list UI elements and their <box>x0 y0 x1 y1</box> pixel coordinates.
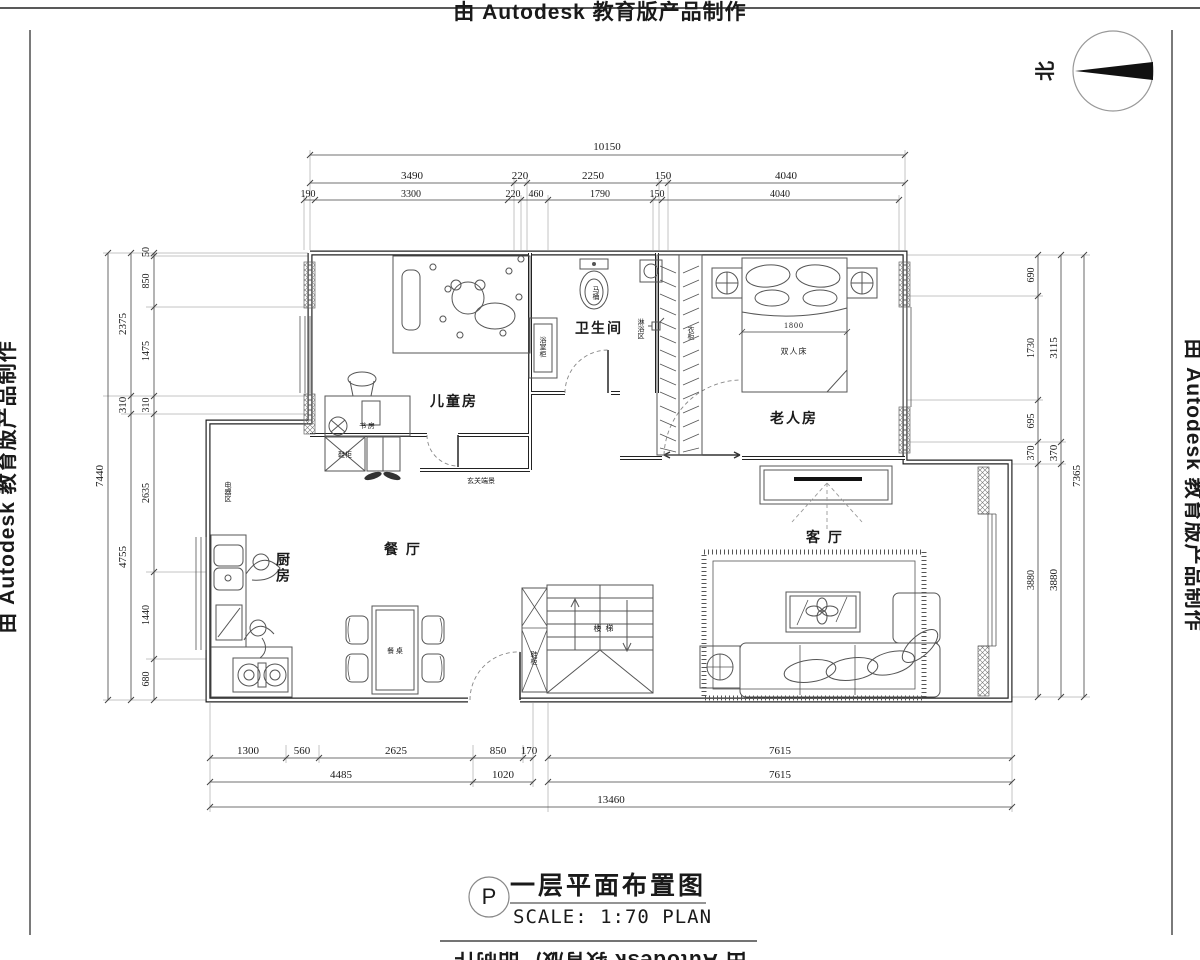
window-hatch <box>978 467 989 514</box>
bed-pillow <box>803 290 837 306</box>
edge-text-top: 由 Autodesk 教育版产品制作 <box>453 0 746 24</box>
plan-scale: SCALE: 1:70 PLAN <box>513 906 712 928</box>
window-hatch <box>304 262 315 308</box>
tv-cabinet <box>760 466 892 504</box>
stairs-down-arrow-icon <box>623 600 631 651</box>
dim-value: 850 <box>141 274 152 289</box>
cartoon-face-icon <box>452 282 484 314</box>
dim-value: 4755 <box>117 546 129 569</box>
person-figure <box>250 620 266 636</box>
kitchen: 电器区 厨房 <box>211 481 292 697</box>
dim-value: 2250 <box>582 170 605 182</box>
dim-value: 150 <box>655 170 672 182</box>
children-room: 书 房 儿童房 <box>325 256 530 436</box>
floor-plan-canvas: 由 Autodesk 教育版产品制作 由 Autodesk 教育版产品制作 由 … <box>0 0 1200 960</box>
stairs-treads <box>547 585 653 693</box>
dim-value: 1440 <box>141 605 152 625</box>
dim-value: 220 <box>506 189 521 200</box>
bath-cabinet-label: 浴室柜 <box>539 336 547 359</box>
window-hatch <box>304 394 315 434</box>
edge-text-left: 由 Autodesk 教育版产品制作 <box>0 340 19 633</box>
bathroom-label: 卫生间 <box>575 320 623 336</box>
study-desk <box>325 396 410 436</box>
desk-lamp-icon <box>348 372 376 386</box>
dims-left-text: 50 850 1475 310 2635 1440 680 2375 310 4… <box>94 247 152 687</box>
north-needle-icon <box>1075 62 1153 80</box>
door-swing-arc <box>565 350 608 393</box>
dim-value: 7365 <box>1071 465 1083 488</box>
dim-value: 3300 <box>401 189 421 200</box>
bed-sheet-line <box>742 308 847 316</box>
window-hatch <box>899 407 910 453</box>
bathroom: 马桶 淋浴区 浴室柜 卫生间 <box>529 259 664 378</box>
double-bed-label: 双人床 <box>781 346 808 356</box>
bed-fold-corner <box>827 370 847 392</box>
dims-top <box>301 150 908 250</box>
title-block: P 一层平面布置图 SCALE: 1:70 PLAN <box>469 871 712 928</box>
shower-area-label: 淋浴区 <box>637 318 645 340</box>
kitchen-label: 厨房 <box>275 552 291 584</box>
bed-width-dim: 1800 <box>784 321 804 330</box>
dim-value: 170 <box>521 745 538 757</box>
shoe-icon <box>382 470 401 482</box>
rug-fringe <box>704 552 924 698</box>
sofa-cushion <box>897 624 943 668</box>
door-swing-arc <box>470 652 520 700</box>
dim-value: 3115 <box>1048 337 1060 359</box>
dim-value: 150 <box>650 189 665 200</box>
window-glass <box>978 514 996 646</box>
dim-value: 310 <box>141 398 152 413</box>
dim-value: 680 <box>141 672 152 687</box>
dim-value: 13460 <box>597 794 625 806</box>
dim-value: 7615 <box>769 769 792 781</box>
elderly-room: 1800 双人床 老人房 <box>712 258 877 426</box>
wardrobe: 衣柜 <box>657 255 702 455</box>
dim-value: 4040 <box>770 189 790 200</box>
stairs-label: 楼 梯 <box>594 623 615 633</box>
dim-extension-lines <box>907 255 1090 697</box>
child-bed <box>393 256 530 353</box>
entry-foyer: 鞋柜 玄关端景 <box>325 437 495 485</box>
cartoon-body-icon <box>475 303 515 329</box>
edge-text-bottom: 由 Autodesk 教育版产品制作 <box>453 949 746 960</box>
plan-title: 一层平面布置图 <box>510 871 706 900</box>
sink-bowl <box>214 545 243 566</box>
sofa-cushion <box>783 656 838 685</box>
dims-top-text: 10150 3490 220 2250 150 4040 190 3300 22… <box>301 141 798 200</box>
child-bed-pillow <box>402 270 420 330</box>
bed-pillow <box>795 263 841 289</box>
shoe-cabinet-label: 鞋柜 <box>338 450 352 459</box>
dim-value: 1475 <box>141 341 152 361</box>
stove-center-panel <box>258 663 266 687</box>
shoe-icon <box>363 470 382 482</box>
toilet-button <box>593 263 596 266</box>
dim-value: 7615 <box>769 745 792 757</box>
stove-burner-icon <box>238 664 260 686</box>
desk-globe-cross <box>331 420 345 432</box>
dim-lines <box>108 253 154 700</box>
dim-value: 690 <box>1026 268 1037 283</box>
tv-projection-lines <box>792 483 862 530</box>
dim-value: 220 <box>512 170 529 182</box>
dim-value: 370 <box>1048 444 1060 461</box>
desk-lamp-base <box>350 381 374 396</box>
person-figure <box>253 554 269 570</box>
north-label: 北 <box>1034 61 1057 81</box>
dim-value: 50 <box>141 247 152 257</box>
dim-value: 1020 <box>492 769 515 781</box>
dining-table-label: 餐 桌 <box>387 646 403 655</box>
dim-value: 1790 <box>590 189 610 200</box>
sofa-cushion <box>825 654 880 683</box>
kitchen-counter-corner <box>211 647 292 697</box>
sink-bowl <box>214 568 243 590</box>
window-hatch <box>899 262 910 307</box>
plan-tag: P <box>482 884 497 909</box>
living-room: 客 厅 <box>700 466 943 698</box>
dims-right-text: 690 1730 695 370 3880 3115 370 3880 7365 <box>1026 268 1083 592</box>
entry-view-label: 玄关端景 <box>467 476 495 485</box>
dim-value: 3880 <box>1026 570 1037 590</box>
dim-value: 310 <box>117 396 129 413</box>
sink-drain <box>225 575 231 581</box>
dim-value: 1300 <box>237 745 260 757</box>
dim-value: 3880 <box>1048 569 1060 592</box>
wardrobe-label: 衣柜 <box>687 325 695 341</box>
bed-pillow <box>755 290 789 306</box>
children-room-label: 儿童房 <box>429 393 478 409</box>
dim-value: 560 <box>294 745 311 757</box>
cartoon-dots <box>430 256 524 338</box>
dim-value: 1730 <box>1026 338 1037 358</box>
door-swing-arc <box>664 380 742 455</box>
appliance-area-label: 电器区 <box>224 481 232 503</box>
dim-value: 4040 <box>775 170 798 182</box>
person-arms <box>244 626 274 658</box>
rug-inner <box>713 561 915 689</box>
stove-burner-inner <box>244 670 254 680</box>
dim-value: 2625 <box>385 745 408 757</box>
dim-value: 2635 <box>141 483 152 503</box>
floor-plan-page: 由 Autodesk 教育版产品制作 由 Autodesk 教育版产品制作 由 … <box>0 0 1200 960</box>
stairs-shoe-cabinet-cross <box>522 588 547 692</box>
dims-right <box>907 252 1090 700</box>
cutting-board-knife <box>218 608 240 637</box>
stairs: 楼 梯 鞋柜 <box>522 585 653 693</box>
dim-value: 850 <box>490 745 507 757</box>
study-label: 书 房 <box>359 421 375 430</box>
sofa-seat-divisions <box>800 643 938 695</box>
dim-value: 190 <box>301 189 316 200</box>
tv-cabinet-inner <box>764 470 888 500</box>
stove-burner-icon <box>264 664 286 686</box>
stove-burner-inner <box>270 670 280 680</box>
dim-value: 460 <box>529 189 544 200</box>
dim-value: 3490 <box>401 170 424 182</box>
elderly-room-label: 老人房 <box>770 410 818 426</box>
dim-value: 370 <box>1026 446 1037 461</box>
door-swing-arc <box>427 435 458 466</box>
dining-room-label: 餐 厅 <box>383 541 422 557</box>
bed-pillow <box>745 263 791 289</box>
living-room-label: 客 厅 <box>805 529 844 545</box>
stairs-shoe-cabinet-label: 鞋柜 <box>530 650 538 666</box>
dim-value: 2375 <box>117 313 129 336</box>
dims-bottom-text: 1300 560 2625 850 170 7615 4485 1020 761… <box>237 745 792 806</box>
toilet-label: 马桶 <box>592 286 600 301</box>
dim-value: 7440 <box>94 465 106 488</box>
dining-room: 餐 桌 餐 厅 <box>346 541 444 694</box>
north-arrow: 北 <box>1034 31 1153 111</box>
dim-value: 10150 <box>593 141 621 153</box>
dim-value: 695 <box>1026 414 1037 429</box>
dim-value: 4485 <box>330 769 353 781</box>
edge-text-right: 由 Autodesk 教育版产品制作 <box>1182 338 1200 631</box>
window-hatch <box>978 646 989 696</box>
